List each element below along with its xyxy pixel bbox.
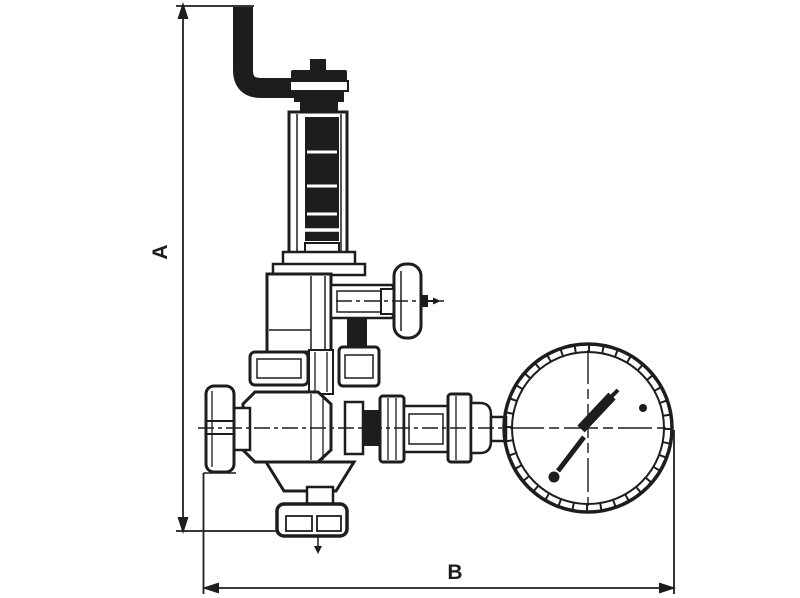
gauge-needle-body <box>581 396 612 429</box>
mid-fittings <box>250 347 379 394</box>
bonnet-body <box>267 274 331 352</box>
spring-column <box>305 117 339 241</box>
arrow-up-icon <box>178 2 189 19</box>
dimension-a-label: A <box>149 244 172 259</box>
cap-band <box>290 81 348 91</box>
valve-body <box>243 392 331 462</box>
gauge-needle-tail <box>558 437 584 471</box>
inlet-handwheel <box>206 386 234 472</box>
connector-pipe <box>404 406 448 452</box>
drawing-canvas: A B <box>0 0 800 598</box>
gauge-needle-tip <box>610 390 618 398</box>
spring-housing <box>289 112 347 258</box>
arrow-left-icon <box>202 583 219 594</box>
needle-counterweight <box>549 472 560 483</box>
bottom-centerline-tip <box>314 546 322 554</box>
pressure-gauge <box>504 344 672 512</box>
union-nut <box>380 396 404 462</box>
dimension-b-label: B <box>447 561 462 584</box>
diaphragm-flange <box>250 352 308 385</box>
branch-elbow-down <box>347 318 367 349</box>
side-test-valve <box>331 264 446 349</box>
cap-lower <box>294 91 344 102</box>
body-shell <box>243 392 331 462</box>
inlet-stem <box>234 408 250 450</box>
adjusting-cap <box>290 59 348 113</box>
center-pipe <box>309 350 333 394</box>
valve-technical-drawing: A B <box>0 0 800 598</box>
dial-stop-pin <box>639 404 647 412</box>
bottom-outlet <box>266 462 354 554</box>
inlet-shutoff <box>206 386 250 472</box>
